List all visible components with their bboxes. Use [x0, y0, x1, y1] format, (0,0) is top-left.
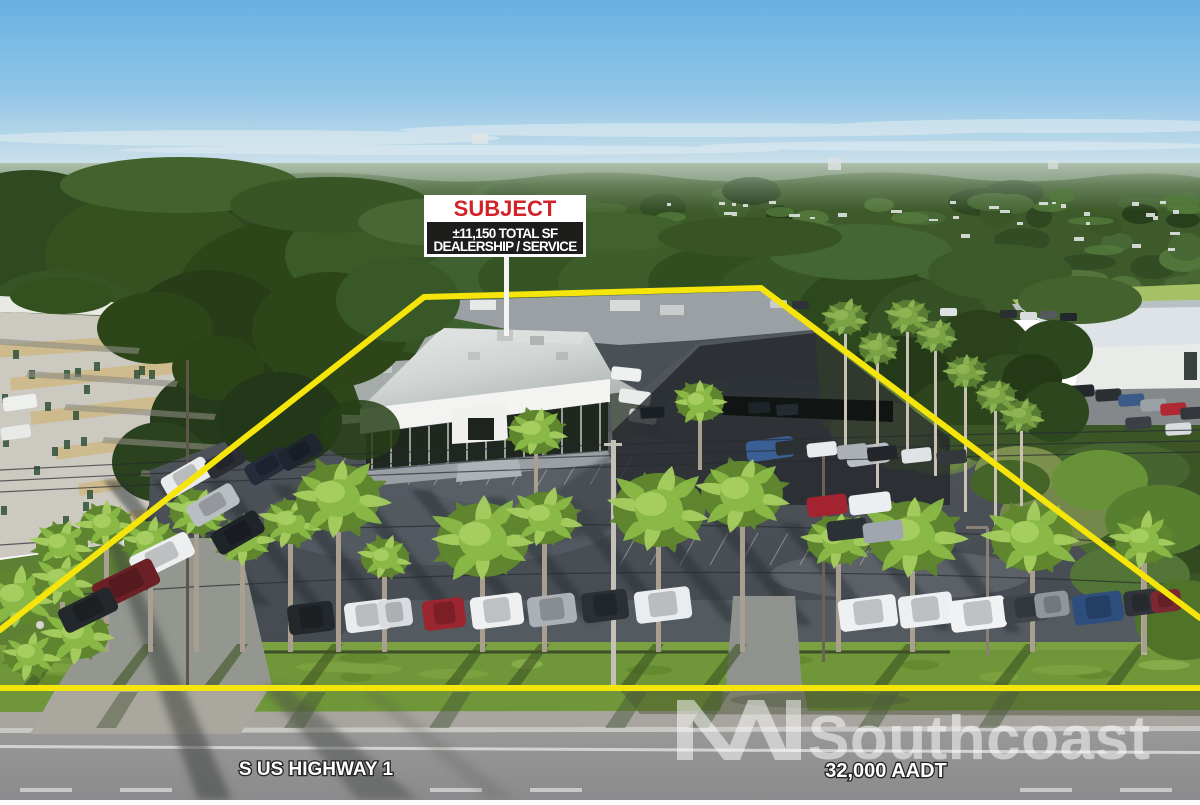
svg-text:SUBJECT: SUBJECT	[454, 196, 557, 221]
svg-text:DEALERSHIP / SERVICE: DEALERSHIP / SERVICE	[433, 239, 577, 254]
svg-text:S US HIGHWAY 1: S US HIGHWAY 1	[239, 759, 394, 780]
svg-text:Southcoast: Southcoast	[808, 704, 1151, 773]
